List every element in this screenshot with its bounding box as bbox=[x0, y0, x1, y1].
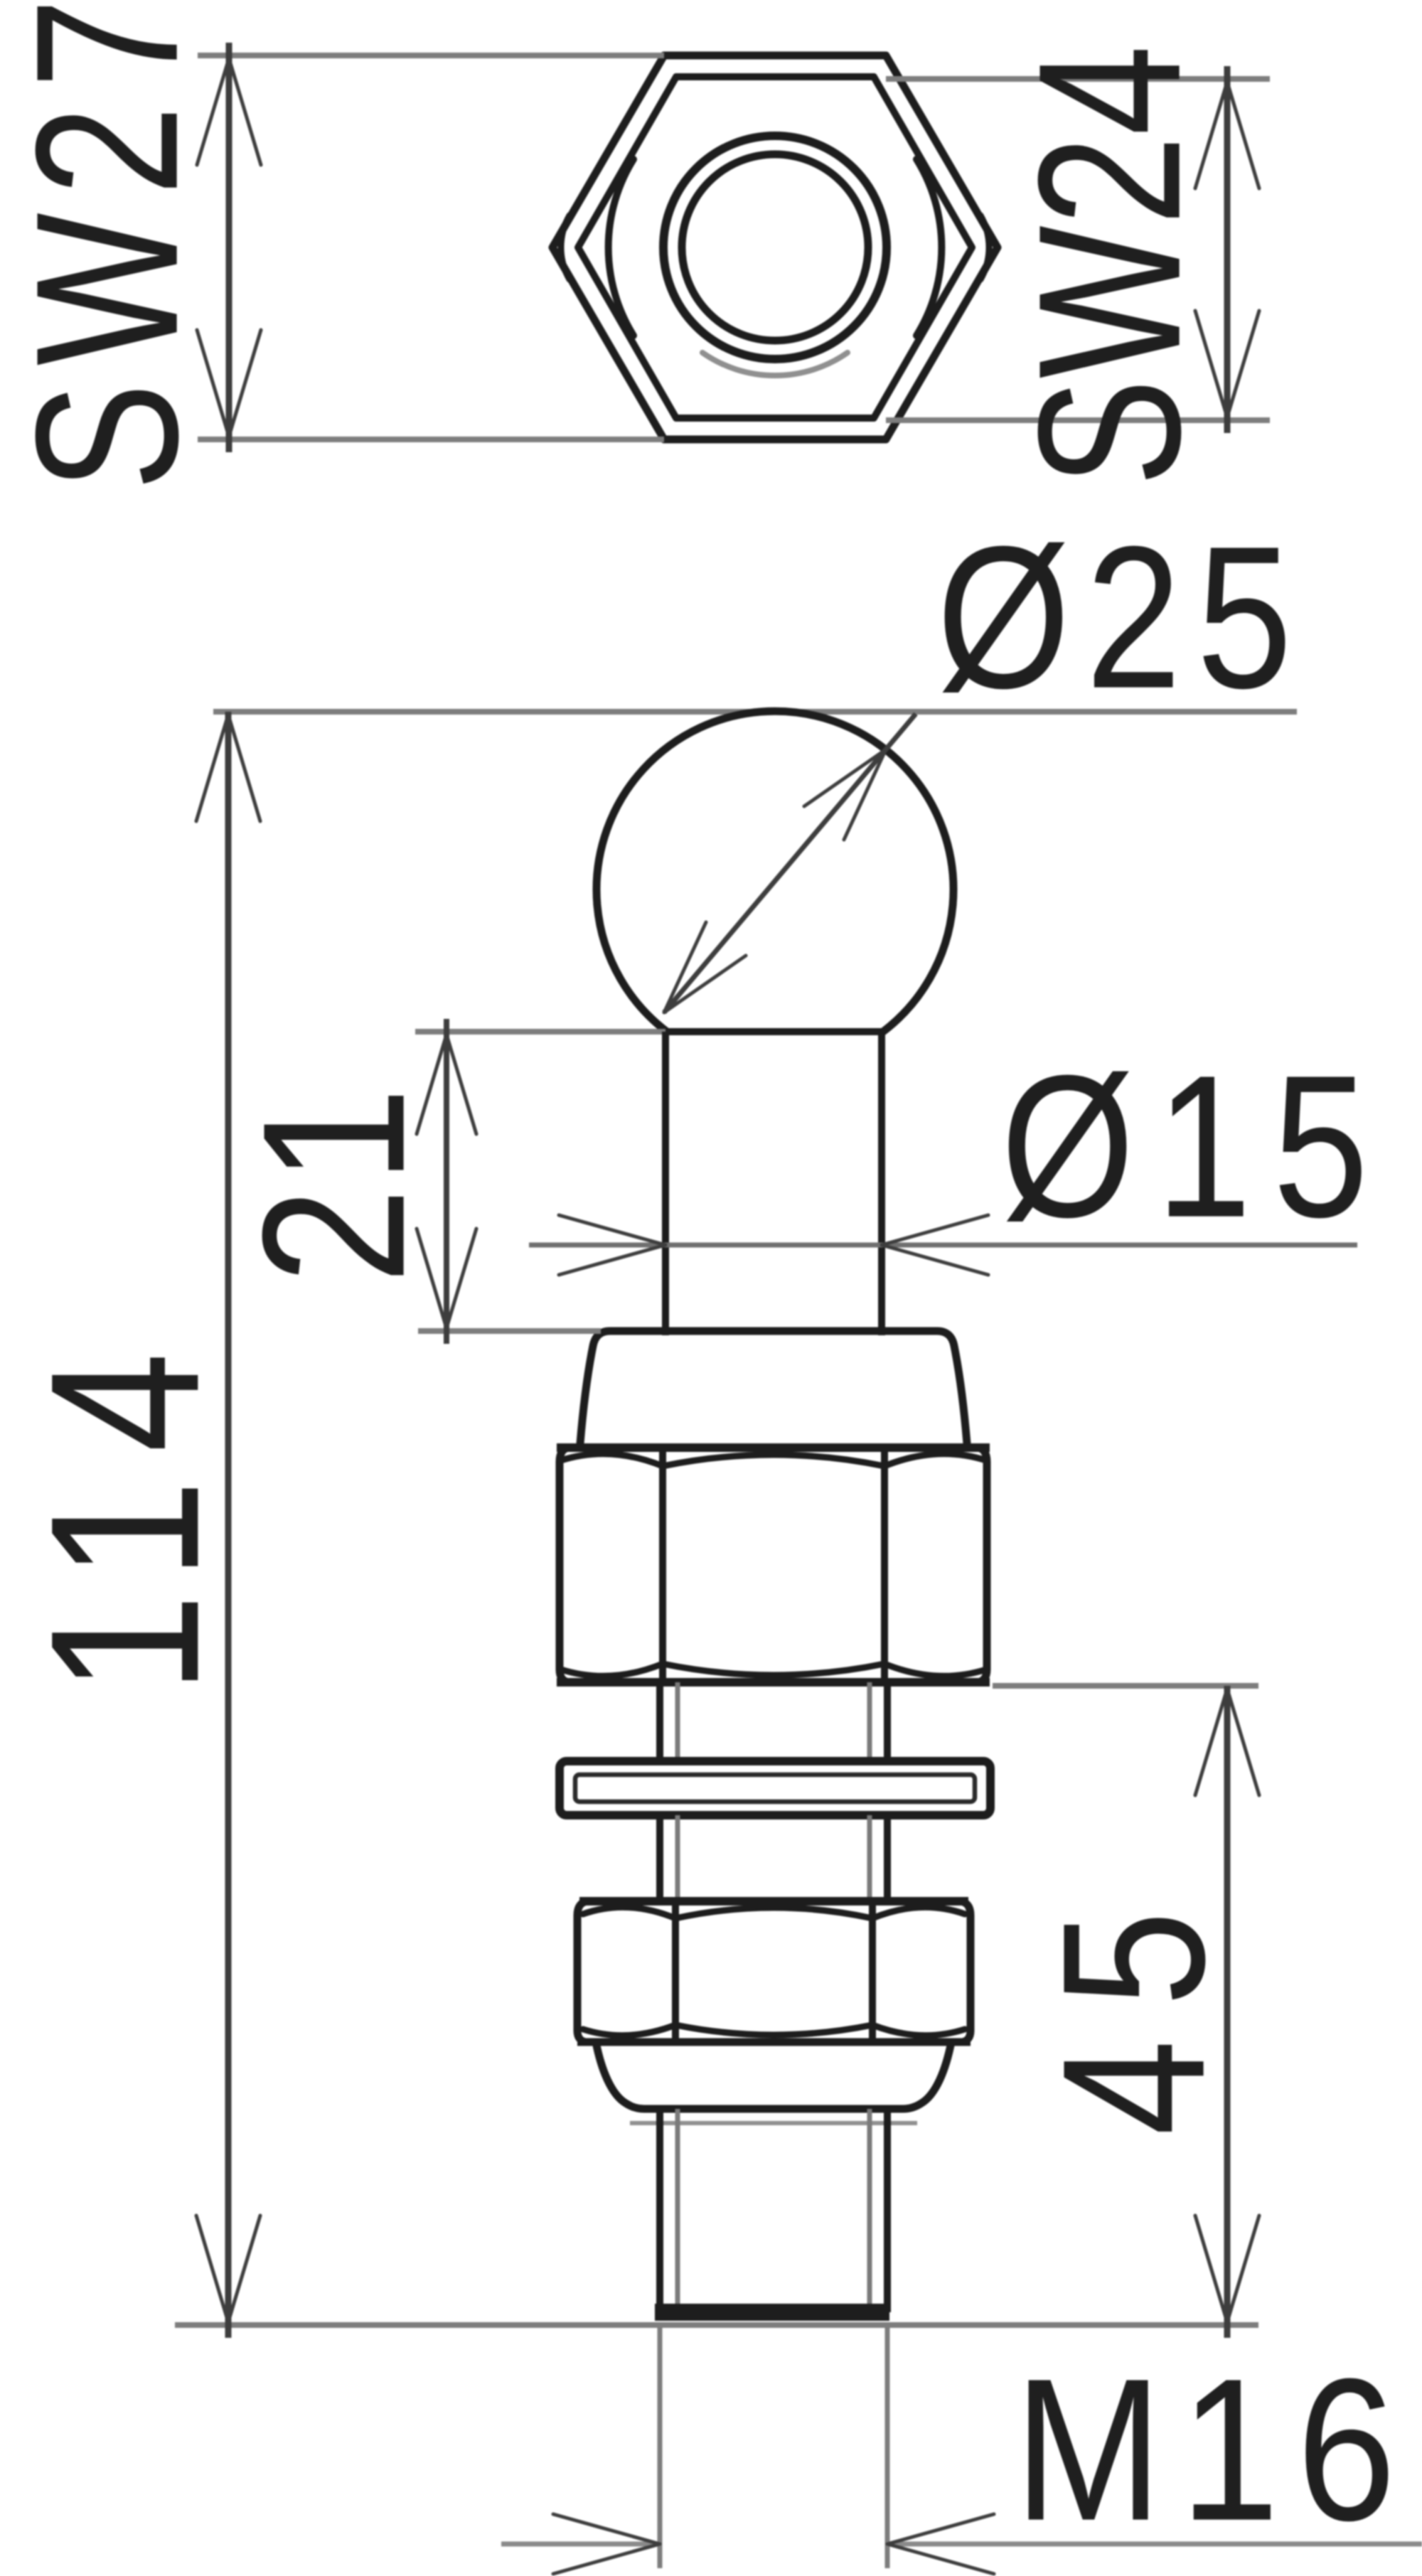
svg-text:Ø25: Ø25 bbox=[936, 505, 1308, 731]
svg-text:21: 21 bbox=[221, 1082, 447, 1283]
svg-text:Ø15: Ø15 bbox=[1000, 1034, 1389, 1260]
svg-text:45: 45 bbox=[1021, 1878, 1247, 2136]
svg-text:SW24: SW24 bbox=[995, 46, 1222, 487]
svg-text:114: 114 bbox=[6, 1325, 243, 1694]
svg-text:SW27: SW27 bbox=[0, 0, 220, 491]
svg-text:M16: M16 bbox=[1014, 2336, 1413, 2563]
